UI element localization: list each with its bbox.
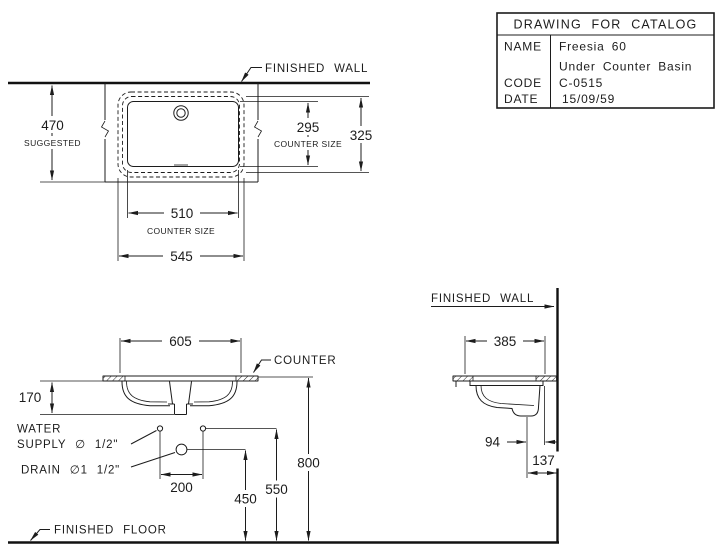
dim-510-note: COUNTER SIZE bbox=[147, 226, 215, 236]
dim-137-value: 137 bbox=[532, 453, 555, 468]
break-mark-bg bbox=[252, 120, 264, 139]
dim-325-value: 325 bbox=[350, 128, 373, 143]
side-elevation-view: FINISHED WALL 385 94 137 bbox=[431, 288, 562, 542]
dim-550-value: 550 bbox=[265, 482, 288, 497]
water-supply-label-line1: WATER bbox=[17, 424, 61, 436]
name-value-line2: Under Counter Basin bbox=[559, 60, 692, 74]
front-drain-outlet bbox=[168, 382, 193, 415]
dim-94-value: 94 bbox=[485, 435, 501, 450]
side-counter-hatch-right bbox=[536, 376, 557, 381]
date-value: 15/09/59 bbox=[562, 92, 615, 106]
finished-floor-leader bbox=[31, 530, 51, 541]
catalog-drawing-page: FINISHED WALL 470 SUGGESTED 295 COUNTER … bbox=[0, 0, 722, 547]
plan-counter-cutout bbox=[128, 102, 239, 167]
dim-470-note: SUGGESTED bbox=[24, 138, 81, 148]
drain-leader bbox=[131, 453, 175, 468]
dim-605-value: 605 bbox=[169, 334, 192, 349]
counter-leader bbox=[254, 360, 272, 373]
side-finished-wall-label: FINISHED WALL bbox=[431, 293, 534, 305]
plan-faucet-hole-inner bbox=[177, 109, 185, 117]
code-value: C-0515 bbox=[559, 76, 603, 90]
front-counter-hatch-left bbox=[103, 376, 125, 381]
code-label: CODE bbox=[504, 76, 542, 90]
dim-510-value: 510 bbox=[171, 206, 194, 221]
side-bowl-inner bbox=[481, 386, 534, 406]
finished-floor-label: FINISHED FLOOR bbox=[54, 525, 167, 537]
plan-finished-wall-leader bbox=[242, 68, 263, 82]
name-label: NAME bbox=[504, 40, 542, 54]
dim-200-value: 200 bbox=[170, 480, 193, 495]
plan-faucet-hole-outer bbox=[174, 106, 188, 120]
dim-385-value: 385 bbox=[494, 334, 517, 349]
plan-basin-rim-outer bbox=[118, 92, 244, 177]
front-counter-hatch-right bbox=[236, 376, 258, 381]
dim-545-value: 545 bbox=[170, 249, 193, 264]
side-bowl-outline bbox=[476, 386, 540, 417]
title-block: DRAWING FOR CATALOG NAME Freesia 60 Unde… bbox=[497, 13, 714, 108]
water-supply-point-left bbox=[157, 426, 162, 431]
name-value-line1: Freesia 60 bbox=[559, 40, 627, 54]
front-bowl-inner-right bbox=[194, 382, 233, 403]
drain-point bbox=[176, 444, 187, 455]
dim-450-value: 450 bbox=[234, 492, 257, 507]
plan-finished-wall-label: FINISHED WALL bbox=[265, 63, 368, 75]
break-mark-bg bbox=[99, 120, 111, 139]
water-supply-leader bbox=[131, 431, 157, 445]
water-supply-label-line2: SUPPLY ∅ 1/2" bbox=[17, 439, 118, 451]
water-supply-point-right bbox=[200, 426, 205, 431]
dim-800-value: 800 bbox=[297, 456, 320, 471]
title-block-title: DRAWING FOR CATALOG bbox=[514, 18, 698, 32]
side-basin-rim bbox=[456, 381, 543, 387]
drain-label: DRAIN ∅1 1/2" bbox=[21, 465, 120, 477]
front-counter-slab bbox=[103, 376, 258, 381]
counter-label: COUNTER bbox=[274, 355, 336, 367]
dim-295-value: 295 bbox=[297, 120, 320, 135]
plan-basin-rim-inner bbox=[123, 97, 240, 173]
dim-170-value: 170 bbox=[19, 390, 42, 405]
dim-295-note: COUNTER SIZE bbox=[274, 139, 342, 149]
date-label: DATE bbox=[504, 92, 538, 106]
plan-view: FINISHED WALL 470 SUGGESTED 295 COUNTER … bbox=[8, 63, 378, 265]
side-counter-hatch-left bbox=[453, 376, 473, 381]
front-bowl-inner-left bbox=[127, 382, 168, 403]
front-elevation-view: 605 COUNTER 170 WATER SUPPLY ∅ 1/2" DRAI… bbox=[8, 333, 559, 543]
drawing-canvas: FINISHED WALL 470 SUGGESTED 295 COUNTER … bbox=[0, 0, 722, 547]
dim-470-value: 470 bbox=[41, 118, 64, 133]
